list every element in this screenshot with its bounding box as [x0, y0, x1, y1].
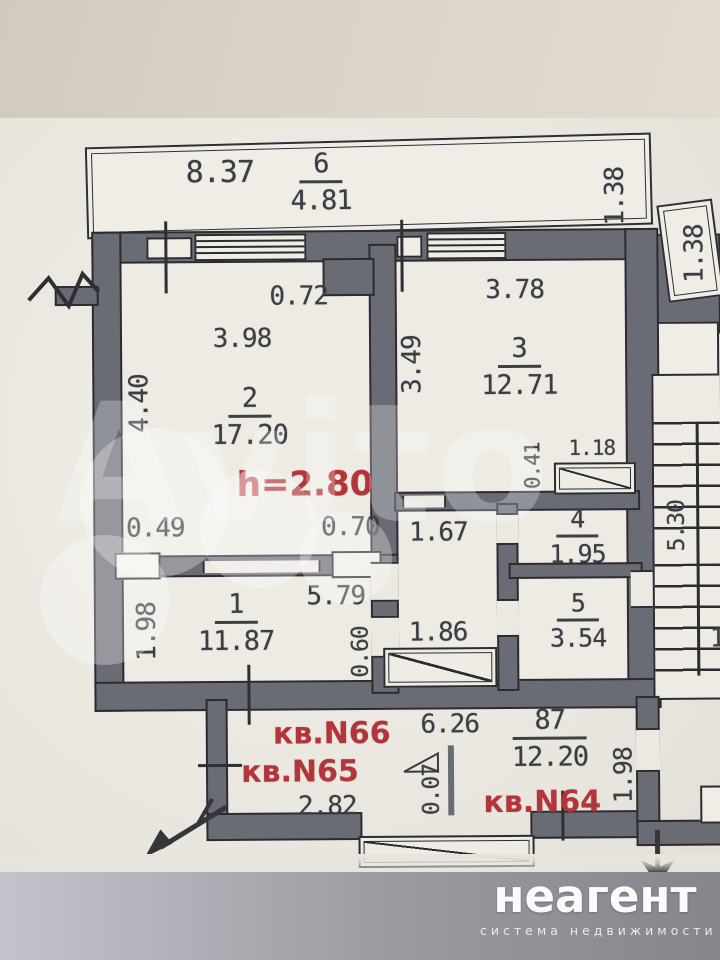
room4-area: 1.95 [549, 537, 605, 566]
room1-width: 5.79 [306, 583, 365, 609]
tick-flat-left [198, 764, 242, 767]
flats-dim: 6.26 [420, 711, 479, 737]
wall-break-icon [18, 264, 102, 327]
pier-room2-left [115, 552, 161, 579]
stairs-length: 5.30 [666, 500, 689, 552]
room3-width: 3.78 [485, 277, 544, 303]
stairs-edge-label: 1 [710, 625, 720, 651]
room2-depth: 4.40 [126, 374, 152, 433]
flat64-label: кв.N64 [483, 787, 601, 818]
window-room3 [426, 232, 506, 260]
floor-plan: 8.37 6 4.81 1.38 1.38 0.72 3.98 4.40 2 1… [0, 0, 720, 960]
room1-depth: 1.98 [134, 602, 160, 661]
flat64-door [636, 728, 660, 772]
room2-number: 2 [228, 385, 271, 418]
room2-area: 17.20 [211, 418, 287, 450]
corridor-dim1: 1.67 [409, 519, 468, 545]
room2-duct-dim: 0.72 [269, 283, 328, 309]
balcony-6-outline [85, 133, 653, 240]
room3-area: 12.71 [481, 368, 557, 400]
balcony-area: 4.81 [290, 183, 351, 214]
flats-area: 12.20 [512, 739, 588, 771]
tick-bottom-wall [247, 665, 250, 725]
agency-logo-brand: неагент [480, 874, 710, 919]
room2-pier-right-dim: 0.70 [321, 514, 380, 540]
room5-area: 3.54 [550, 621, 606, 650]
shaft-room3 [554, 462, 636, 495]
room1-area: 11.87 [198, 624, 274, 656]
room1-number: 1 [214, 591, 257, 624]
tick-window1 [164, 221, 168, 293]
door-room4 [496, 513, 518, 545]
stair-treads-lower [655, 563, 720, 675]
flats-number: 87 [512, 706, 587, 740]
room3-shaft-width: 1.18 [568, 438, 615, 459]
door-room1-room2 [203, 560, 321, 573]
room1-number-area: 1 11.87 [198, 591, 275, 656]
tick-window2 [400, 220, 404, 292]
balcony-depth: 1.38 [602, 167, 628, 226]
agency-logo: неагент система недвижимости [480, 874, 710, 938]
flats-depth: 1.98 [610, 747, 635, 803]
balcony-number: 6 [299, 150, 342, 183]
room2-pier-left-dim: 0.49 [126, 515, 185, 541]
window-room2 [194, 233, 306, 261]
floor-plan-photo: 8.37 6 4.81 1.38 1.38 0.72 3.98 4.40 2 1… [0, 0, 720, 960]
balcony-length: 8.37 [186, 158, 254, 188]
balcony-number-area: 6 4.81 [290, 150, 351, 214]
room4-number-area: 4 1.95 [549, 506, 606, 566]
break-arrow-icon [140, 799, 232, 862]
room5-number-area: 5 3.54 [550, 590, 607, 650]
ceiling-height-label: h=2.80 [237, 467, 374, 502]
side-balcony-depth: 1.38 [681, 224, 707, 283]
agency-logo-tagline: система недвижимости [480, 923, 710, 938]
door-room5 [497, 599, 519, 637]
balcony-6-inner-line [91, 139, 647, 233]
room3-shaft-depth: 0.41 [522, 442, 543, 489]
room4-number: 4 [556, 506, 598, 537]
door-corridor-room1 [371, 562, 399, 602]
shaft-room3-hatch [559, 467, 631, 490]
flat65-label: кв.N65 [241, 757, 359, 788]
flats-width: 2.82 [298, 793, 357, 819]
shaft-corridor-hatch [388, 652, 492, 683]
window-pier-left [146, 237, 192, 259]
flats-number-area: 87 12.20 [511, 706, 588, 771]
duct-room2 [324, 260, 372, 294]
corridor-dim2: 1.86 [409, 619, 468, 645]
flat66-label: кв.N66 [273, 719, 391, 750]
room3-number: 3 [497, 335, 540, 368]
room5-number: 5 [557, 590, 599, 621]
room3-number-area: 3 12.71 [481, 335, 558, 400]
shaft-corridor [383, 647, 497, 688]
flats-thin-dim: 0.07 [420, 764, 443, 816]
flat64-shaft [700, 785, 720, 823]
flat-wall-thin [448, 745, 454, 815]
room2-width: 3.98 [213, 326, 272, 352]
corridor-dim3: 0.60 [350, 626, 373, 678]
room3-depth: 3.49 [399, 335, 425, 394]
room2-number-area: 2 17.20 [211, 385, 288, 450]
door-corridor-room3 [402, 495, 446, 507]
